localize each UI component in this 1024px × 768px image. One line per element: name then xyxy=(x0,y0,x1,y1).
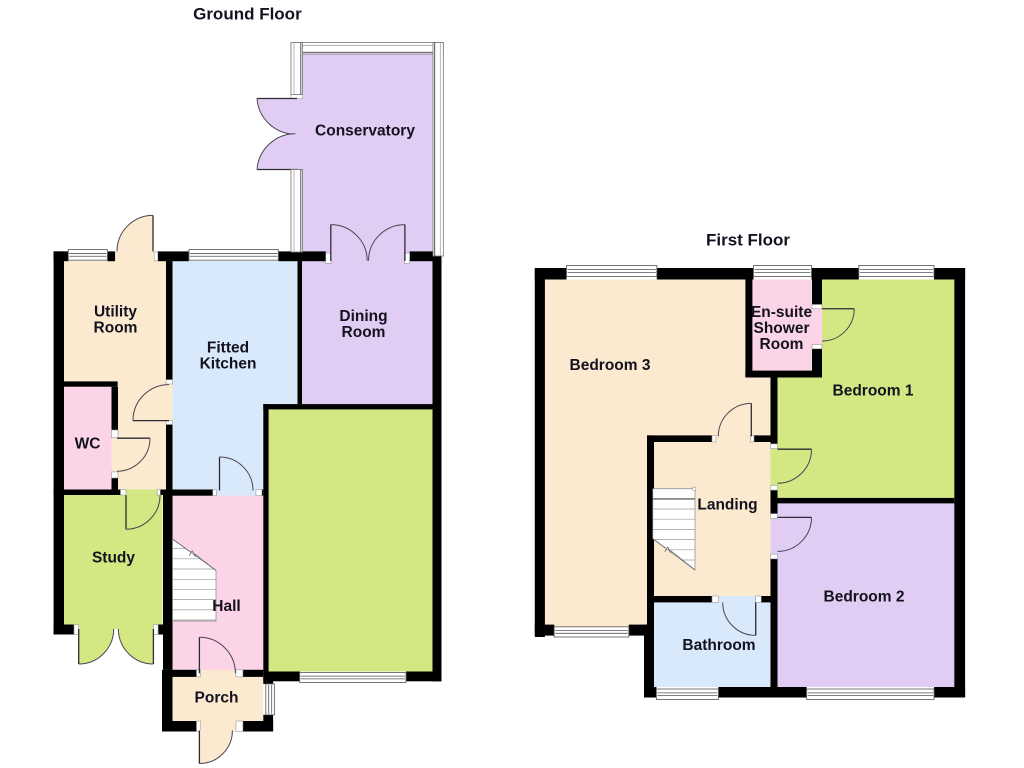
svg-text:Ground Floor: Ground Floor xyxy=(193,5,302,24)
svg-text:WC: WC xyxy=(75,436,101,453)
svg-text:Landing: Landing xyxy=(697,497,757,514)
svg-text:Bedroom 2: Bedroom 2 xyxy=(824,589,905,606)
svg-text:Fitted: Fitted xyxy=(207,340,249,357)
svg-text:Room: Room xyxy=(342,324,386,341)
svg-text:Room: Room xyxy=(760,336,804,353)
svg-text:Room: Room xyxy=(94,320,138,337)
svg-text:Bathroom: Bathroom xyxy=(682,637,755,654)
svg-text:Study: Study xyxy=(92,550,135,567)
svg-text:En-suite: En-suite xyxy=(751,304,813,321)
svg-text:Kitchen: Kitchen xyxy=(200,356,257,373)
svg-text:Hall: Hall xyxy=(212,598,240,615)
svg-text:Dining: Dining xyxy=(339,308,387,325)
svg-text:Shower: Shower xyxy=(754,320,810,337)
svg-text:Conservatory: Conservatory xyxy=(315,123,415,140)
svg-text:First Floor: First Floor xyxy=(706,231,790,250)
svg-text:Porch: Porch xyxy=(195,690,239,707)
svg-text:Bedroom 1: Bedroom 1 xyxy=(833,383,914,400)
svg-text:Utility: Utility xyxy=(94,304,137,321)
svg-text:Bedroom 3: Bedroom 3 xyxy=(570,357,651,374)
